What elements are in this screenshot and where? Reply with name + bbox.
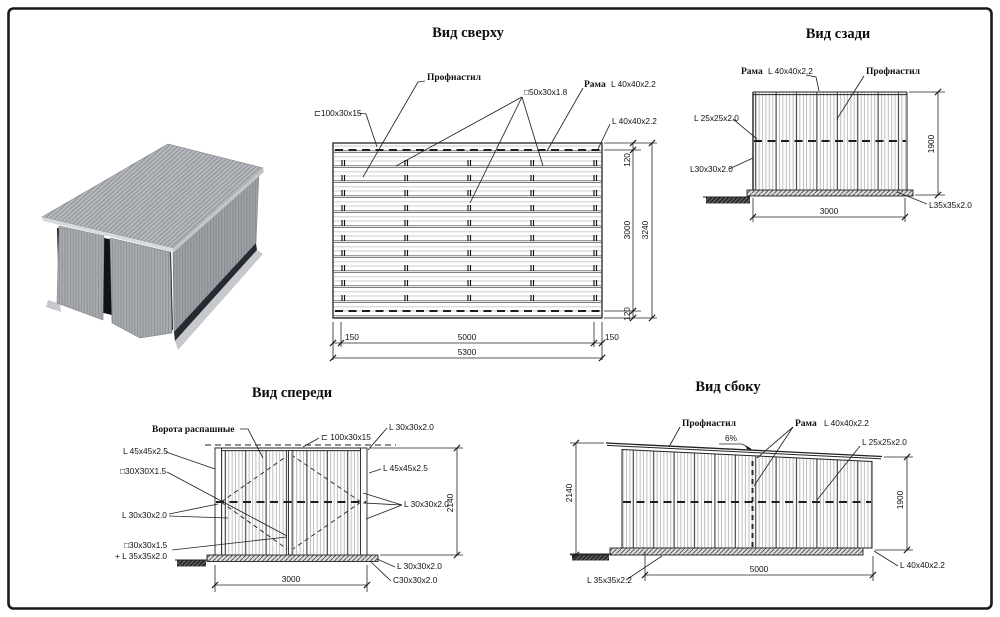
side-label-profnastil: Профнастил (682, 418, 737, 429)
front-label-angle35-bottom: + L 35x35x2.0 (115, 551, 167, 561)
side-label-slope: 6% (725, 433, 738, 443)
drawing-canvas: Вид сверху ⊏100x30x15 Профнастил □50x30x… (0, 0, 1000, 617)
top-dim-120-bottom: 120 (622, 307, 632, 321)
top-label-channel: ⊏100x30x15 (314, 108, 362, 118)
garage-drawing-sheet: Вид сверху ⊏100x30x15 Профнастил □50x30x… (0, 0, 1000, 617)
side-dim-5000: 5000 (750, 564, 769, 574)
top-dim-150-right: 150 (605, 332, 619, 342)
back-label-profnastil: Профнастил (866, 66, 921, 77)
front-label-angle45-right: L 45x45x2.5 (383, 463, 428, 473)
top-label-frame-word: Рама (584, 80, 606, 90)
front-dim-3000: 3000 (282, 574, 301, 584)
top-label-profnastil: Профнастил (427, 72, 482, 83)
front-column-right (361, 448, 368, 555)
back-label-angle35: L35x35x2.0 (929, 200, 972, 210)
top-dim-150-left: 150 (345, 332, 359, 342)
side-base-beam (610, 548, 863, 555)
side-label-angle25: L 25x25x2.0 (862, 437, 907, 447)
side-dim-2140: 2140 (564, 483, 574, 502)
front-label-tube30-left: □30X30X1.5 (120, 466, 166, 476)
back-base-beam (747, 190, 913, 196)
back-wall (753, 92, 907, 190)
front-label-channel: ⊏ 100x30x15 (321, 432, 371, 442)
side-view-title: Вид сбоку (695, 379, 761, 395)
side-ground-hatch (572, 555, 609, 561)
iso-door-right (110, 238, 172, 338)
back-label-angle25: L 25x25x2.0 (694, 113, 739, 123)
front-dim-2140: 2140 (445, 493, 455, 512)
back-dim-1900: 1900 (926, 134, 936, 153)
back-label-frame-word: Рама (741, 67, 763, 77)
top-dim-5300: 5300 (458, 347, 477, 357)
top-purlin-ticks (334, 158, 601, 306)
side-wall (622, 450, 872, 549)
top-dim-120-top: 120 (622, 153, 632, 167)
top-dim-5000: 5000 (458, 332, 477, 342)
front-label-angle30-top-right: L 30x30x2.0 (389, 422, 434, 432)
back-view-title: Вид сзади (806, 26, 871, 42)
top-label-tube: □50x30x1.8 (524, 87, 568, 97)
front-label-angle30-bottom-right: L 30x30x2.0 (397, 561, 442, 571)
front-label-gates: Ворота распашные (152, 425, 235, 435)
back-ground-hatch (706, 198, 750, 204)
front-label-angle30-right: L 30x30x2.0 (404, 499, 449, 509)
side-label-frame-word: Рама (795, 419, 817, 429)
front-label-angle45-left: L 45x45x2.5 (123, 446, 168, 456)
side-label-frame-spec: L 40x40x2.2 (824, 418, 869, 428)
front-label-c30: C30x30x2.0 (393, 575, 438, 585)
top-view-title: Вид сверху (432, 25, 504, 41)
top-label-angle: L 40x40x2.2 (612, 116, 657, 126)
top-dim-3000: 3000 (622, 220, 632, 239)
side-dim-1900: 1900 (895, 490, 905, 509)
front-view-title: Вид спереди (252, 385, 332, 401)
top-dim-3240: 3240 (640, 220, 650, 239)
side-label-angle35: L 35x35x2.2 (587, 575, 632, 585)
back-label-angle30: L30x30x2.0 (690, 164, 733, 174)
front-ground-hatch (177, 561, 206, 567)
front-base-beam (207, 555, 378, 562)
iso-door-left (57, 226, 104, 320)
back-label-frame-spec: L 40x40x2.2 (768, 66, 813, 76)
front-label-tube30-bottom: □30x30x1.5 (124, 540, 168, 550)
front-label-angle30-left: L 30x30x2.0 (122, 510, 167, 520)
side-label-angle40: L 40x40x2.2 (900, 560, 945, 570)
top-label-frame-spec: L 40x40x2.2 (611, 79, 656, 89)
back-dim-3000: 3000 (820, 206, 839, 216)
